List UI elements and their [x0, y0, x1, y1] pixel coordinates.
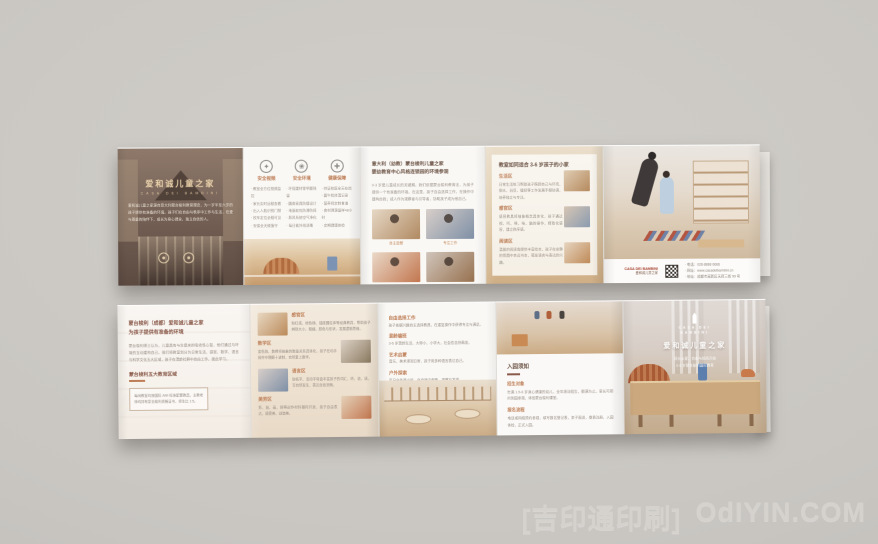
zone-row: 数学区 金色珠、数棒将抽象的数量关系具体化，孩子在动手操作中理解十进制，自然爱上… — [258, 340, 371, 364]
zone-title: 感官区 — [291, 312, 370, 319]
zone-photo-thumb — [564, 206, 590, 227]
underline-rule — [129, 380, 145, 382]
child-photo-item: 专注工作 — [426, 209, 474, 246]
cover-tagline: 成长从爱、自由与规则开始 0-6 岁蒙台梭利国际教育 — [638, 355, 752, 369]
zone-body: 日常生活练习帮助孩子照顾自己与环境，倒水、舀豆、缝纫等工作发展手眼协调，培养独立… — [499, 181, 563, 201]
bottom-panel-front-cover: CASA DEI BAMBINI 爱和诚儿童之家 成长从爱、自由与规则开始 0-… — [622, 299, 766, 434]
admission-card: 入园须知 招生对象 年满 1.5-6 岁身心健康的幼儿，全年滚动招生，额满为止。… — [497, 353, 624, 435]
highlight-item: 自由选择工作 孩子依据兴趣自主选择教具，在重复操作中获得专注与满足。 — [388, 315, 485, 329]
qr-code — [665, 264, 678, 277]
child-figure — [660, 176, 674, 213]
round-table — [454, 409, 480, 419]
wall-shelf — [384, 386, 492, 402]
translucent-overlay: 蒙台梭利（成都）爱和诚儿童之家 为孩子提供有准备的环境 蒙台梭利博士认为，儿童具… — [117, 305, 250, 439]
fox-plush-toy — [741, 369, 755, 377]
zone-text: 感官区 粉红塔、棕色梯、插座圆柱体等经典教具，帮助孩子辨别大小、粗细、颜色与形状… — [291, 312, 370, 333]
admission-heading: 入园须知 — [507, 361, 613, 370]
highlight-title: 艺术启蒙 — [389, 351, 486, 358]
highlight-title: 混龄编班 — [389, 333, 486, 340]
zone-title: 数学区 — [258, 340, 337, 347]
photo-caption: 动手操作 — [372, 284, 420, 285]
kitchen-corner-photo — [496, 301, 622, 354]
tagline-line2: 0-6 岁蒙台梭利国际教育 — [638, 362, 752, 370]
bottom-panel-philosophy: 蒙台梭利（成都）爱和诚儿童之家 为孩子提供有准备的环境 蒙台梭利博士认为，儿童具… — [117, 304, 250, 439]
section-body: 0-3 岁是儿童成长的关键期。我们依据蒙台梭利教育法，为孩子提供一个有准备的环境… — [372, 182, 474, 203]
zone-text: 语言区 砂纸字、活动字母盒丰富孩子的词汇，听、说、读、写自然发生，表达自信流畅。 — [292, 368, 371, 389]
wooden-table — [698, 239, 745, 247]
section-heading-line2: 婴幼教育中心风格连锁园的环境参观 — [372, 169, 474, 178]
photo-caption: 自主进餐 — [372, 241, 420, 246]
admission-body: 年满 1.5-6 岁身心健康的幼儿，全年滚动招生，额满为止。家长可预约到园参观，… — [507, 388, 613, 402]
child-photo — [426, 252, 474, 282]
highlight-title: 自由选择工作 — [388, 315, 485, 322]
feature-icon: ✦ — [260, 160, 273, 173]
zone-photo-thumb — [564, 242, 590, 263]
zone-row: 语言区 砂纸字、活动字母盒丰富孩子的词汇，听、说、读、写自然发生，表达自信流畅。 — [258, 368, 371, 392]
zone-photo — [341, 396, 371, 419]
zone-section: 生活区 日常生活练习帮助孩子照顾自己与环境，倒水、舀豆、缝纫等工作发展手眼协调，… — [499, 173, 563, 201]
highlight-body: 3-6 岁混龄生活，大带小、小学大，社会性自然萌发。 — [389, 341, 486, 348]
blue-toy-box — [327, 257, 337, 271]
cover-intro-text: 爱和诚儿童之家源自意大利蒙台梭利教育理念，为一岁半至六岁的孩子提供有准备的环境。… — [128, 202, 233, 223]
top-panel-building-cover: 爱和诚儿童之家 CASA DEI BAMBINI 爱和诚儿童之家源自意大利蒙台梭… — [118, 147, 244, 286]
feature-columns: ✦ 安全视频 · 教室全方位视频监控 · 家长实时远程查看 · 出入人脸识别门禁… — [244, 147, 360, 234]
highlight-list: 自由选择工作 孩子依据兴趣自主选择教具，在重复操作中获得专注与满足。 混龄编班 … — [378, 302, 496, 384]
zone-photo — [341, 340, 371, 363]
zone-title: 语言区 — [292, 368, 371, 375]
admission-section: 招生对象 年满 1.5-6 岁身心健康的幼儿，全年滚动招生，额满为止。家长可预约… — [507, 380, 613, 402]
photo-caption: 混龄社交 — [426, 284, 474, 285]
watermark: [吉印通印刷] OdIYIN.COM — [522, 497, 866, 536]
wooden-cabinet — [630, 380, 761, 416]
feature-icon: ✚ — [331, 159, 344, 172]
admission-section: 报名流程 电话或网络预约参观，填写报名登记表，亲子面谈，缴费注册，入园体检，正式… — [507, 407, 613, 429]
hanging-utensil — [547, 311, 552, 319]
shelf-line — [244, 274, 360, 277]
feature-column: ✦ 安全视频 · 教室全方位视频监控 · 家长实时远程查看 · 出入人脸识别门禁… — [251, 160, 283, 230]
zone-row: 感官区 粉红塔、棕色梯、插座圆柱体等经典教具，帮助孩子辨别大小、粗细、颜色与形状… — [257, 312, 370, 336]
brochure-subtitle: CASA DEI BAMBINI — [128, 191, 233, 196]
logo-en-line2: BAMBINI — [638, 330, 752, 336]
zones-heading: 教室如同适合 3-6 岁孩子的小家 — [499, 161, 590, 168]
watermark-cn: [吉印通印刷] — [522, 497, 682, 536]
child-photo — [372, 252, 420, 282]
colorful-rug — [643, 230, 705, 240]
building-glass-facade — [138, 236, 223, 286]
zone-photo — [258, 368, 288, 391]
admission-body: 电话或网络预约参观，填写报名登记表，亲子面谈，缴费注册，入园体检，正式入园。 — [507, 415, 613, 429]
zone-title: 感官区 — [499, 206, 563, 212]
zone-title: 生活区 — [499, 173, 563, 179]
bottom-panel-admission: 入园须知 招生对象 年满 1.5-6 岁身心健康的幼儿，全年滚动招生，额满为止。… — [495, 300, 623, 435]
feature-title: 健康保障 — [321, 175, 352, 181]
admission-title: 报名流程 — [507, 407, 613, 414]
highlight-item: 混龄编班 3-6 岁混龄生活，大带小、小学大，社会性自然萌发。 — [389, 333, 486, 347]
areas-subheading: 蒙台梭利五大教育区域 — [129, 370, 239, 378]
feature-list: · 持证校医全天在岗 · 晨午检体温记录 · 营养师定制食谱 · 食材溯源留样4… — [322, 185, 354, 229]
watermark-site: OdIYIN.COM — [696, 497, 867, 536]
philosophy-heading-line2: 为孩子提供有准备的环境 — [129, 327, 239, 337]
zone-text: 美劳区 剪、贴、画、捏等创作材料随时开放，孩子自由表达，感受美、创造美。 — [258, 396, 337, 417]
feature-list: · 环保建材零甲醛残留 · 圆角家具防撞设计 · 地面软包防滑防摔 · 新风系统… — [286, 186, 318, 230]
montessori-shelf — [693, 160, 749, 224]
zone-section: 阅读区 温馨的阅读角提供丰富绘本，孩子在安静的氛围中亲近书本，萌发语言与表达的兴… — [499, 238, 563, 266]
admission-title: 招生对象 — [507, 380, 613, 387]
hanging-utensil — [559, 311, 564, 319]
brochure-bottom: 蒙台梭利（成都）爱和诚儿童之家 为孩子提供有准备的环境 蒙台梭利博士认为，儿童具… — [117, 299, 766, 439]
zone-row: 美劳区 剪、贴、画、捏等创作材料随时开放，孩子自由表达，感受美、创造美。 — [258, 396, 371, 420]
feature-column: ❀ 安全环境 · 环保建材零甲醛残留 · 圆角家具防撞设计 · 地面软包防滑防摔… — [286, 160, 318, 230]
cover-title: 爱和诚儿童之家 — [638, 340, 752, 351]
contact-info: · 电话：028-8888 6666 · 网址：www.casadeibambi… — [685, 261, 740, 280]
top-panel-intro-photos: 意大利（幼教）蒙台梭利儿童之家 婴幼教育中心风格连锁园的环境参观 0-3 岁是儿… — [360, 146, 486, 285]
wooden-stove-toy — [512, 334, 528, 346]
feature-icon: ❀ — [295, 160, 308, 173]
translucent-overlay: 教室如同适合 3-6 岁孩子的小家 生活区 日常生活练习帮助孩子照顾自己与环境，… — [492, 154, 598, 276]
zone-title: 阅读区 — [499, 238, 563, 244]
child-photo-item: 混龄社交 — [426, 252, 474, 285]
zone-body: 感官教具将抽象概念具体化，孩子通过视、听、嗅、味、触的操作，精致化感官，建立秩序… — [499, 214, 563, 234]
classroom-photo — [379, 379, 497, 436]
highlight-body: 孩子依据兴趣自主选择教具，在重复操作中获得专注与满足。 — [389, 322, 486, 329]
logo-cn: 爱和诚儿童之家 — [624, 271, 657, 275]
teacher-figure — [630, 157, 659, 208]
logo-text: CASA DEI BAMBINI 爱和诚儿童之家 — [624, 267, 657, 276]
top-panel-safety-features: ✦ 安全视频 · 教室全方位视频监控 · 家长实时远程查看 · 出入人脸识别门禁… — [243, 146, 361, 285]
note-box: 每间教室均按国际 AMI 标准配置教具，主教老师均持有蒙台梭利资格证书，师生比 … — [129, 387, 208, 410]
bottom-panel-zones: 感官区 粉红塔、棕色梯、插座圆柱体等经典教具，帮助孩子辨别大小、粗细、颜色与形状… — [249, 303, 378, 438]
highlight-title: 户外探索 — [389, 370, 486, 377]
contact-strip: CASA DEI BAMBINI 爱和诚儿童之家 · 电话：028-8888 6… — [604, 258, 760, 283]
highlight-item: 艺术启蒙 音乐、美术浸润日常，孩子用多种语言表达自己。 — [389, 351, 486, 365]
mockup-stage: 爱和诚儿童之家 CASA DEI BAMBINI 爱和诚儿童之家源自意大利蒙台梭… — [0, 0, 878, 544]
zone-text: 数学区 金色珠、数棒将抽象的数量关系具体化，孩子在动手操作中理解十进制，自然爱上… — [258, 340, 337, 361]
zone-body: 金色珠、数棒将抽象的数量关系具体化，孩子在动手操作中理解十进制，自然爱上数学。 — [258, 348, 337, 361]
child-photo-item: 动手操作 — [372, 252, 420, 285]
bottom-panel-highlights: 自由选择工作 孩子依据兴趣自主选择教具，在重复操作中获得专注与满足。 混龄编班 … — [377, 301, 496, 436]
top-panel-back-cover: CASA DEI BAMBINI 爱和诚儿童之家 · 电话：028-8888 6… — [603, 144, 761, 283]
top-panel-classroom-zones: 教室如同适合 3-6 岁孩子的小家 生活区 日常生活练习帮助孩子照顾自己与环境，… — [485, 145, 604, 284]
classroom-photo — [604, 145, 761, 259]
child-photo — [372, 209, 420, 239]
round-table — [405, 414, 431, 424]
zone-body: 剪、贴、画、捏等创作材料随时开放，孩子自由表达，感受美、创造美。 — [258, 404, 337, 417]
tower-logo-icon — [638, 312, 752, 324]
hanging-utensil — [534, 311, 539, 319]
photo-grid: 自主进餐 专注工作 动手操作 混龄社交 — [372, 209, 474, 285]
brochure-title: 爱和诚儿童之家 — [128, 178, 233, 190]
zone-body: 粉红塔、棕色梯、插座圆柱体等经典教具，帮助孩子辨别大小、粗细、颜色与形状，发展逻… — [292, 319, 371, 332]
highlight-body: 音乐、美术浸润日常，孩子用多种语言表达自己。 — [389, 359, 486, 366]
feature-list: · 教室全方位视频监控 · 家长实时远程查看 · 出入人脸识别门禁 · 校车定位… — [251, 186, 283, 230]
zone-rows: 感官区 粉红塔、棕色梯、插座圆柱体等经典教具，帮助孩子辨别大小、粗细、颜色与形状… — [250, 304, 378, 438]
brochure-top: 爱和诚儿童之家 CASA DEI BAMBINI 爱和诚儿童之家源自意大利蒙台梭… — [118, 144, 761, 285]
photo-caption: 专注工作 — [426, 241, 474, 246]
wooden-bridge-toy — [263, 258, 299, 274]
cover-text-block: 爱和诚儿童之家 CASA DEI BAMBINI 爱和诚儿童之家源自意大利蒙台梭… — [128, 178, 233, 223]
zone-body: 砂纸字、活动字母盒丰富孩子的词汇，听、说、读、写自然发生，表达自信流畅。 — [292, 375, 371, 388]
cover-text-block: CASA DEI BAMBINI 爱和诚儿童之家 成长从爱、自由与规则开始 0-… — [638, 312, 752, 370]
underline-rule — [507, 373, 520, 375]
playroom-photo — [244, 238, 360, 285]
philosophy-body: 蒙台梭利博士认为，儿童具有与生俱来的吸收性心智，他们通过与环境的互动建构自己。我… — [129, 342, 239, 364]
child-photo — [426, 209, 474, 239]
admission-sections: 招生对象 年满 1.5-6 岁身心健康的幼儿，全年滚动招生，额满为止。家长可预约… — [507, 380, 613, 429]
zone-photo — [257, 312, 287, 335]
zone-section: 感官区 感官教具将抽象概念具体化，孩子通过视、听、嗅、味、触的操作，精致化感官，… — [499, 206, 563, 234]
zone-photo-thumb — [564, 170, 590, 191]
feature-column: ✚ 健康保障 · 持证校医全天在岗 · 晨午检体温记录 · 营养师定制食谱 · … — [321, 159, 353, 229]
zone-title: 美劳区 — [258, 396, 337, 403]
feature-title: 安全环境 — [286, 176, 317, 182]
feature-title: 安全视频 — [251, 176, 282, 182]
zone-body: 温馨的阅读角提供丰富绘本，孩子在安静的氛围中亲近书本，萌发语言与表达的兴趣。 — [499, 246, 563, 266]
child-photo-item: 自主进餐 — [372, 209, 420, 246]
